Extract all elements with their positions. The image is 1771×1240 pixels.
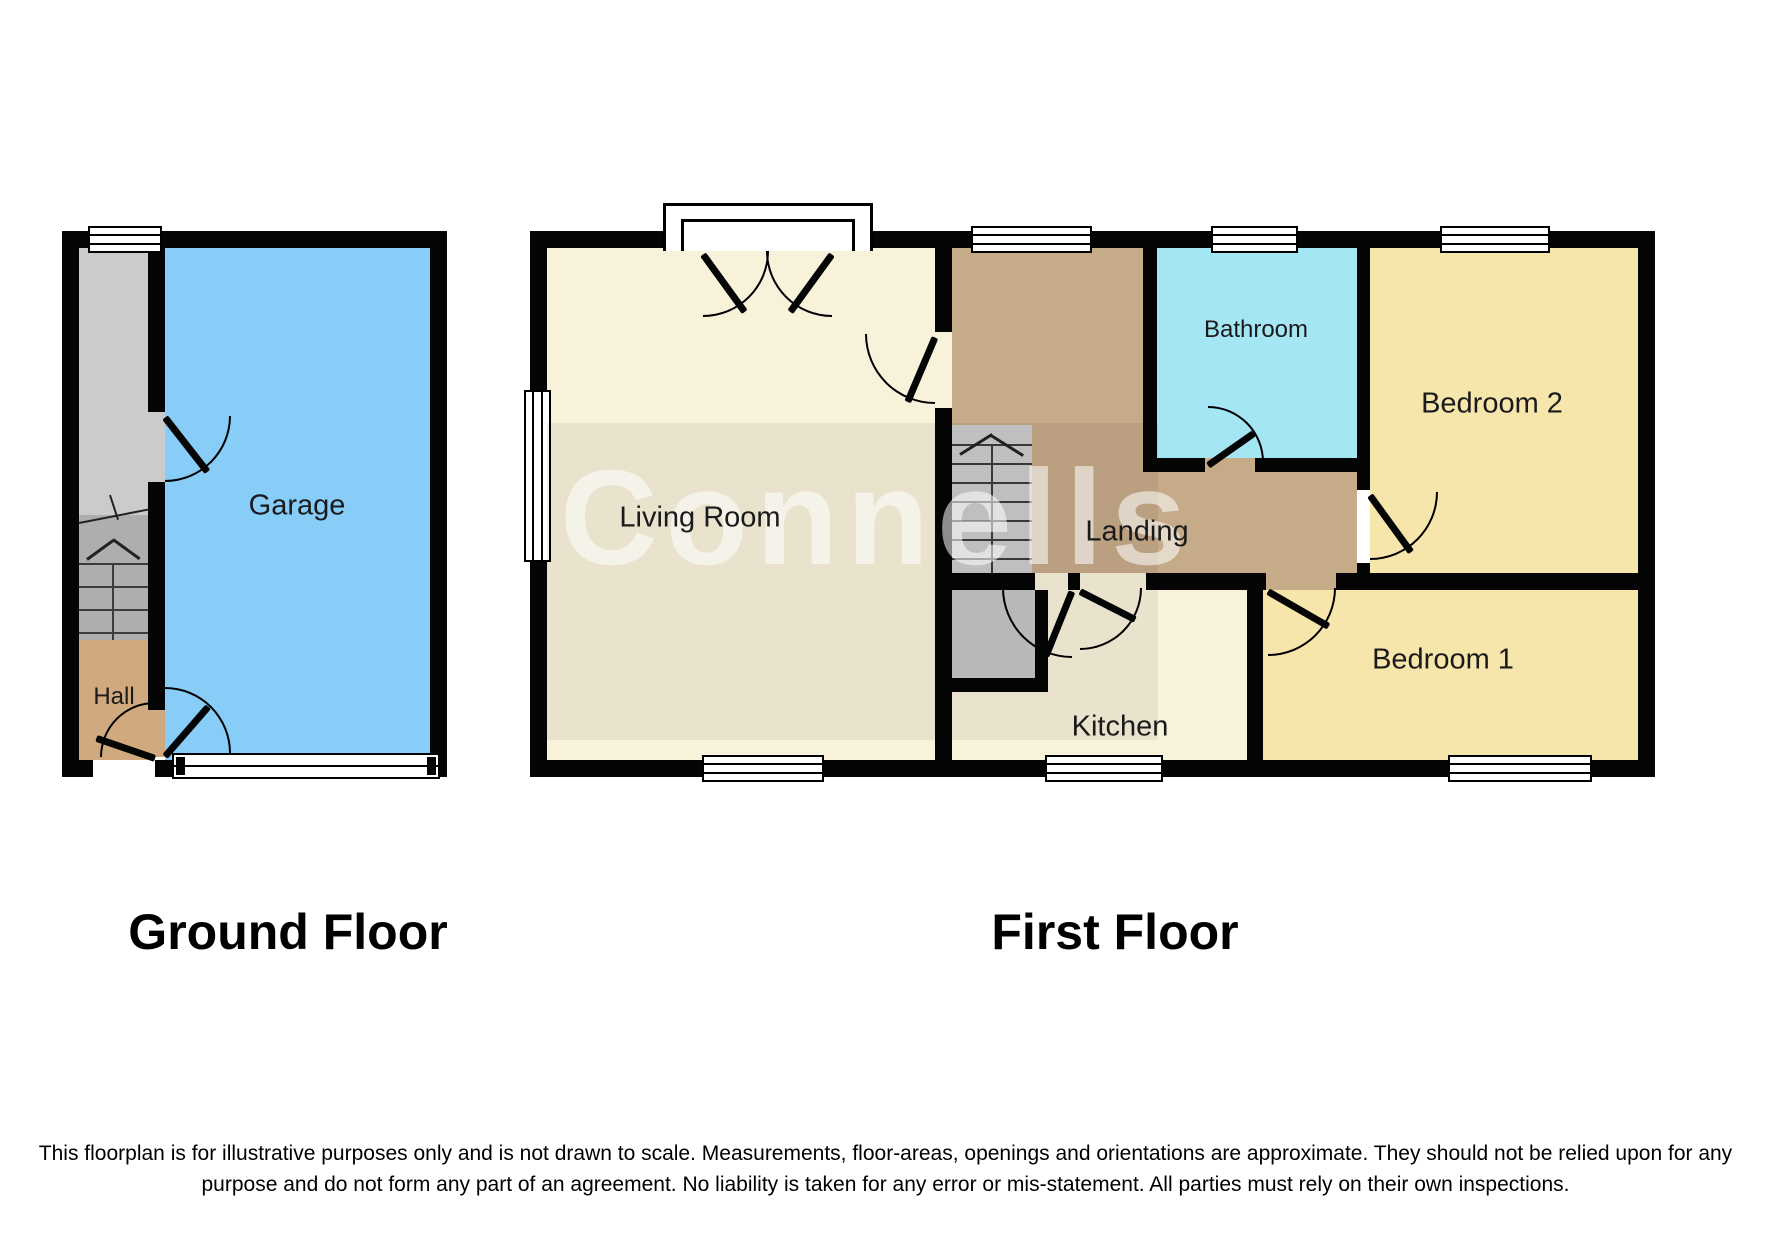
room-landing-fill xyxy=(952,248,1143,425)
wall xyxy=(1357,248,1370,490)
window xyxy=(88,226,162,253)
window xyxy=(1440,226,1550,253)
garage-door-line xyxy=(174,765,438,767)
garage-door-cap xyxy=(427,757,436,775)
door-opening xyxy=(148,412,165,482)
wall xyxy=(1255,458,1370,472)
wall xyxy=(148,248,165,412)
floor-title-first: First Floor xyxy=(991,903,1238,961)
window xyxy=(1448,755,1592,782)
wall xyxy=(1638,231,1655,777)
wall xyxy=(1247,590,1263,760)
stairs-upper-ground-fill xyxy=(79,248,148,515)
room-label-bathroom: Bathroom xyxy=(1204,316,1308,344)
window xyxy=(1045,755,1163,782)
garage-door-cap xyxy=(176,757,185,775)
garage-door xyxy=(172,753,440,779)
room-label-hall: Hall xyxy=(93,683,134,711)
room-bathroom-fill xyxy=(1157,248,1357,458)
wall xyxy=(935,248,952,332)
door-opening xyxy=(93,760,155,777)
stair-center-line xyxy=(112,563,114,640)
window xyxy=(1211,226,1298,253)
window xyxy=(971,226,1092,253)
room-label-landing: Landing xyxy=(1085,516,1188,549)
disclaimer: This floorplan is for illustrative purpo… xyxy=(0,1138,1771,1200)
room-label-kitchen: Kitchen xyxy=(1072,711,1169,744)
door-opening xyxy=(700,229,835,250)
wall xyxy=(148,482,165,712)
room-label-living-room: Living Room xyxy=(619,502,780,535)
disclaimer-line-1: This floorplan is for illustrative purpo… xyxy=(0,1138,1771,1169)
floorplan-page: Garage Hall xyxy=(0,0,1771,1240)
room-label-garage: Garage xyxy=(249,490,346,523)
door-opening xyxy=(935,332,952,408)
window xyxy=(702,755,824,782)
room-label-bedroom1: Bedroom 1 xyxy=(1372,644,1514,677)
disclaimer-line-2: purpose and do not form any part of an a… xyxy=(0,1169,1771,1200)
wall xyxy=(1336,573,1638,590)
floor-title-ground: Ground Floor xyxy=(128,903,447,961)
wall xyxy=(62,231,79,777)
room-label-bedroom2: Bedroom 2 xyxy=(1421,388,1563,421)
wall xyxy=(430,231,447,777)
